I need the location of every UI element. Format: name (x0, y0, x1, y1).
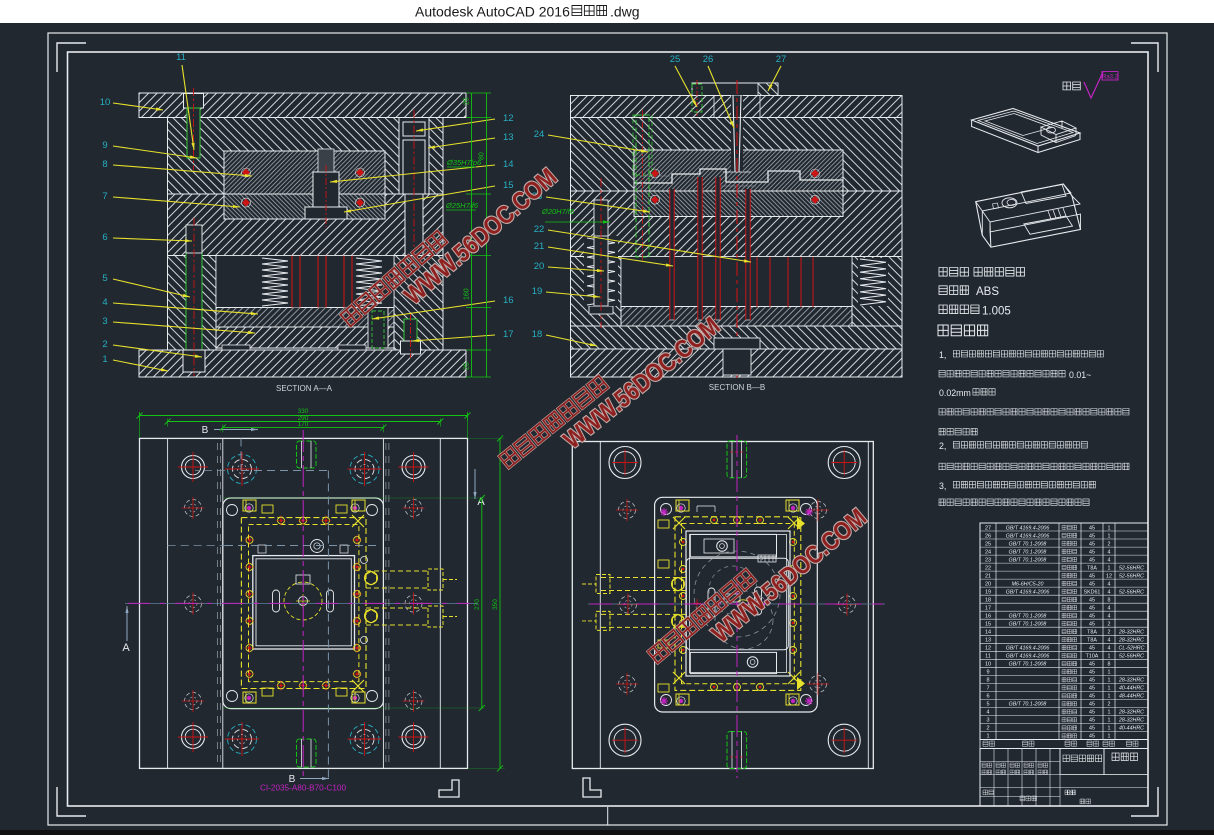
svg-text:45: 45 (1089, 525, 1095, 531)
svg-text:1: 1 (1108, 710, 1111, 716)
svg-text:2: 2 (1108, 541, 1111, 547)
svg-text:45: 45 (1089, 662, 1095, 668)
svg-text:1: 1 (1108, 533, 1111, 539)
svg-text:18: 18 (985, 597, 991, 603)
svg-text:GB/T 70.1-2008: GB/T 70.1-2008 (1009, 549, 1047, 555)
svg-text:52-56HRC: 52-56HRC (1119, 654, 1144, 660)
svg-text:160: 160 (464, 288, 471, 300)
svg-text:45: 45 (1089, 726, 1095, 732)
svg-text:45: 45 (1089, 549, 1095, 555)
svg-text:45: 45 (1089, 581, 1095, 587)
svg-text:GB/T 70.1-2008: GB/T 70.1-2008 (1009, 541, 1047, 547)
svg-text:0.02mm: 0.02mm (939, 388, 971, 398)
svg-text:4: 4 (102, 297, 107, 308)
svg-text:330: 330 (298, 408, 309, 415)
svg-text:25: 25 (670, 54, 681, 65)
svg-text:T8A: T8A (1087, 630, 1097, 636)
svg-text:4: 4 (1108, 605, 1111, 611)
svg-text:19: 19 (532, 286, 543, 297)
svg-text:5: 5 (102, 273, 107, 284)
svg-text:21: 21 (534, 241, 545, 252)
svg-text:13: 13 (503, 132, 514, 143)
svg-text:CL-52HRC: CL-52HRC (1119, 646, 1145, 652)
svg-text:45: 45 (1089, 646, 1095, 652)
svg-text:24: 24 (985, 549, 991, 555)
svg-text:T8A: T8A (1087, 638, 1097, 644)
svg-text:2: 2 (102, 339, 107, 350)
svg-text:22: 22 (534, 224, 545, 235)
svg-text:45: 45 (1089, 622, 1095, 628)
svg-text:52-56HRC: 52-56HRC (1119, 589, 1144, 595)
svg-text:2: 2 (1108, 622, 1111, 628)
svg-text:15: 15 (503, 180, 514, 191)
svg-text:GB/T 70.1-2008: GB/T 70.1-2008 (1009, 702, 1047, 708)
svg-text:10: 10 (100, 97, 111, 108)
svg-text:2: 2 (986, 726, 989, 732)
svg-text:M6-6H/C5-20: M6-6H/C5-20 (1012, 581, 1044, 587)
svg-text:28-32HRC: 28-32HRC (1118, 718, 1144, 724)
svg-text:6: 6 (986, 694, 989, 700)
svg-text:45: 45 (1089, 533, 1095, 539)
svg-text:1: 1 (1108, 654, 1111, 660)
svg-text:CI-2035-A80-B70-C100: CI-2035-A80-B70-C100 (260, 784, 346, 793)
svg-text:12: 12 (503, 113, 514, 124)
svg-text:52-56HRC: 52-56HRC (1119, 565, 1144, 571)
svg-text:45: 45 (1089, 710, 1095, 716)
svg-text:26: 26 (703, 54, 714, 65)
svg-text:7: 7 (986, 686, 989, 692)
svg-text:28-32HRC: 28-32HRC (1118, 710, 1144, 716)
svg-text:48-44HRC: 48-44HRC (1119, 694, 1144, 700)
svg-text:28-32HRC: 28-32HRC (1118, 630, 1144, 636)
svg-text:45: 45 (1089, 557, 1095, 563)
svg-text:1:1: 1:1 (1066, 791, 1075, 797)
svg-text:7: 7 (102, 191, 107, 202)
svg-text:Ø25H7/f6: Ø25H7/f6 (445, 201, 479, 210)
svg-text:1: 1 (986, 734, 989, 740)
svg-text:2: 2 (1108, 702, 1111, 708)
svg-text:22: 22 (985, 565, 991, 571)
svg-text:1: 1 (1108, 694, 1111, 700)
svg-text:45: 45 (1089, 614, 1095, 620)
svg-text:1: 1 (1108, 726, 1111, 732)
svg-text:25: 25 (464, 362, 471, 370)
svg-text:T8A: T8A (1087, 565, 1097, 571)
svg-text:4: 4 (1108, 646, 1111, 652)
svg-text:25: 25 (985, 541, 991, 547)
svg-text:ABS: ABS (976, 286, 999, 298)
svg-text:10: 10 (985, 662, 991, 668)
svg-text:350: 350 (492, 599, 499, 610)
svg-text:11: 11 (985, 654, 991, 660)
svg-text:Ø20H7/f6: Ø20H7/f6 (541, 207, 575, 216)
svg-text:2: 2 (1108, 630, 1111, 636)
svg-text:.dwg: .dwg (610, 4, 640, 20)
svg-text:1.005: 1.005 (982, 305, 1011, 317)
svg-text:27: 27 (776, 54, 787, 65)
svg-text:8: 8 (1108, 597, 1111, 603)
svg-text:1: 1 (1108, 670, 1111, 676)
svg-text:20: 20 (985, 581, 991, 587)
svg-text:T10A: T10A (1086, 654, 1099, 660)
svg-text:2,: 2, (939, 441, 946, 451)
svg-text:8: 8 (1108, 662, 1111, 668)
svg-text:SECTION A—A: SECTION A—A (276, 384, 333, 393)
svg-text:45: 45 (1089, 734, 1095, 740)
svg-text:4: 4 (1108, 614, 1111, 620)
svg-text:4: 4 (1108, 581, 1111, 587)
svg-text:9: 9 (102, 140, 107, 151)
svg-text:1: 1 (1108, 565, 1111, 571)
svg-text:Autodesk AutoCAD 2016: Autodesk AutoCAD 2016 (415, 4, 570, 20)
svg-text:GB/T 70.1-2008: GB/T 70.1-2008 (1009, 557, 1047, 563)
svg-text:1: 1 (1108, 686, 1111, 692)
svg-text:Ø35H7/p6: Ø35H7/p6 (446, 158, 482, 167)
svg-text:20: 20 (534, 261, 545, 272)
svg-text:28-32HRC: 28-32HRC (1118, 638, 1144, 644)
svg-text:45: 45 (1089, 694, 1095, 700)
svg-text:1: 1 (1108, 678, 1111, 684)
svg-text:8: 8 (102, 159, 107, 170)
svg-text:1,: 1, (939, 350, 946, 360)
svg-text:18: 18 (532, 329, 543, 340)
svg-text:21: 21 (985, 573, 991, 579)
svg-text:SKD61: SKD61 (1084, 589, 1101, 595)
svg-text:3: 3 (102, 316, 107, 327)
svg-text:45: 45 (1089, 718, 1095, 724)
svg-text:1: 1 (1108, 525, 1111, 531)
svg-text:6: 6 (102, 232, 107, 243)
svg-text:17: 17 (985, 605, 991, 611)
svg-text:45: 45 (1089, 670, 1095, 676)
svg-text:19: 19 (985, 589, 991, 595)
svg-text:16: 16 (503, 295, 514, 306)
svg-text:45: 45 (1089, 678, 1095, 684)
svg-text:45: 45 (1089, 597, 1095, 603)
svg-text:11: 11 (176, 52, 186, 63)
svg-text:3: 3 (986, 718, 989, 724)
svg-text:GB/T 4169.4-2006: GB/T 4169.4-2006 (1006, 654, 1050, 660)
svg-text:SECTION B—B: SECTION B—B (709, 383, 765, 392)
svg-text:GB/T 4169.4-2006: GB/T 4169.4-2006 (1006, 646, 1050, 652)
svg-text:270: 270 (474, 599, 481, 610)
svg-text:5: 5 (986, 702, 989, 708)
svg-text:GB/T 4169.4-2006: GB/T 4169.4-2006 (1006, 525, 1050, 531)
svg-text:B: B (202, 425, 209, 436)
svg-text:28-32HRC: 28-32HRC (1118, 678, 1144, 684)
svg-text:3,: 3, (939, 481, 946, 491)
svg-text:4: 4 (1108, 638, 1111, 644)
svg-text:16: 16 (985, 614, 991, 620)
svg-text:Ra3.2: Ra3.2 (1102, 74, 1119, 80)
svg-text:GB/T 70.1-2008: GB/T 70.1-2008 (1009, 622, 1047, 628)
svg-text:45: 45 (1089, 605, 1095, 611)
svg-text:9: 9 (986, 670, 989, 676)
svg-text:12: 12 (1106, 573, 1112, 579)
svg-text:15: 15 (985, 622, 991, 628)
svg-text:GB/T 70.1-2008: GB/T 70.1-2008 (1009, 662, 1047, 668)
svg-text:GB/T 4169.4-2006: GB/T 4169.4-2006 (1006, 533, 1050, 539)
svg-text:1: 1 (1108, 734, 1111, 740)
svg-text:A: A (122, 642, 130, 654)
svg-text:17: 17 (503, 329, 514, 340)
svg-text:14: 14 (985, 630, 991, 636)
svg-text:45: 45 (1089, 686, 1095, 692)
svg-text:23: 23 (985, 557, 991, 563)
svg-text:1: 1 (102, 354, 107, 365)
svg-text:170: 170 (298, 421, 309, 428)
svg-text:12: 12 (985, 646, 991, 652)
svg-text:25: 25 (464, 97, 471, 105)
svg-text:1: 1 (1108, 718, 1111, 724)
svg-text:27: 27 (985, 525, 991, 531)
svg-text:40-44HRC: 40-44HRC (1119, 726, 1144, 732)
svg-text:45: 45 (1089, 702, 1095, 708)
svg-text:GB/T 70.1-2008: GB/T 70.1-2008 (1009, 614, 1047, 620)
svg-text:0.01~: 0.01~ (1069, 370, 1091, 380)
svg-text:24: 24 (534, 129, 545, 140)
svg-text:14: 14 (503, 159, 514, 170)
svg-text:8: 8 (986, 678, 989, 684)
svg-text:40-44HRC: 40-44HRC (1119, 686, 1144, 692)
svg-text:52-56HRC: 52-56HRC (1119, 573, 1144, 579)
svg-text:4: 4 (1108, 557, 1111, 563)
svg-text:GB/T 4169.4-2006: GB/T 4169.4-2006 (1006, 589, 1050, 595)
svg-text:4: 4 (1108, 589, 1111, 595)
svg-text:26: 26 (985, 533, 991, 539)
svg-text:4: 4 (1108, 549, 1111, 555)
svg-text:45: 45 (1089, 541, 1095, 547)
svg-text:13: 13 (985, 638, 991, 644)
svg-text:45: 45 (1089, 573, 1095, 579)
svg-text:4: 4 (986, 710, 989, 716)
